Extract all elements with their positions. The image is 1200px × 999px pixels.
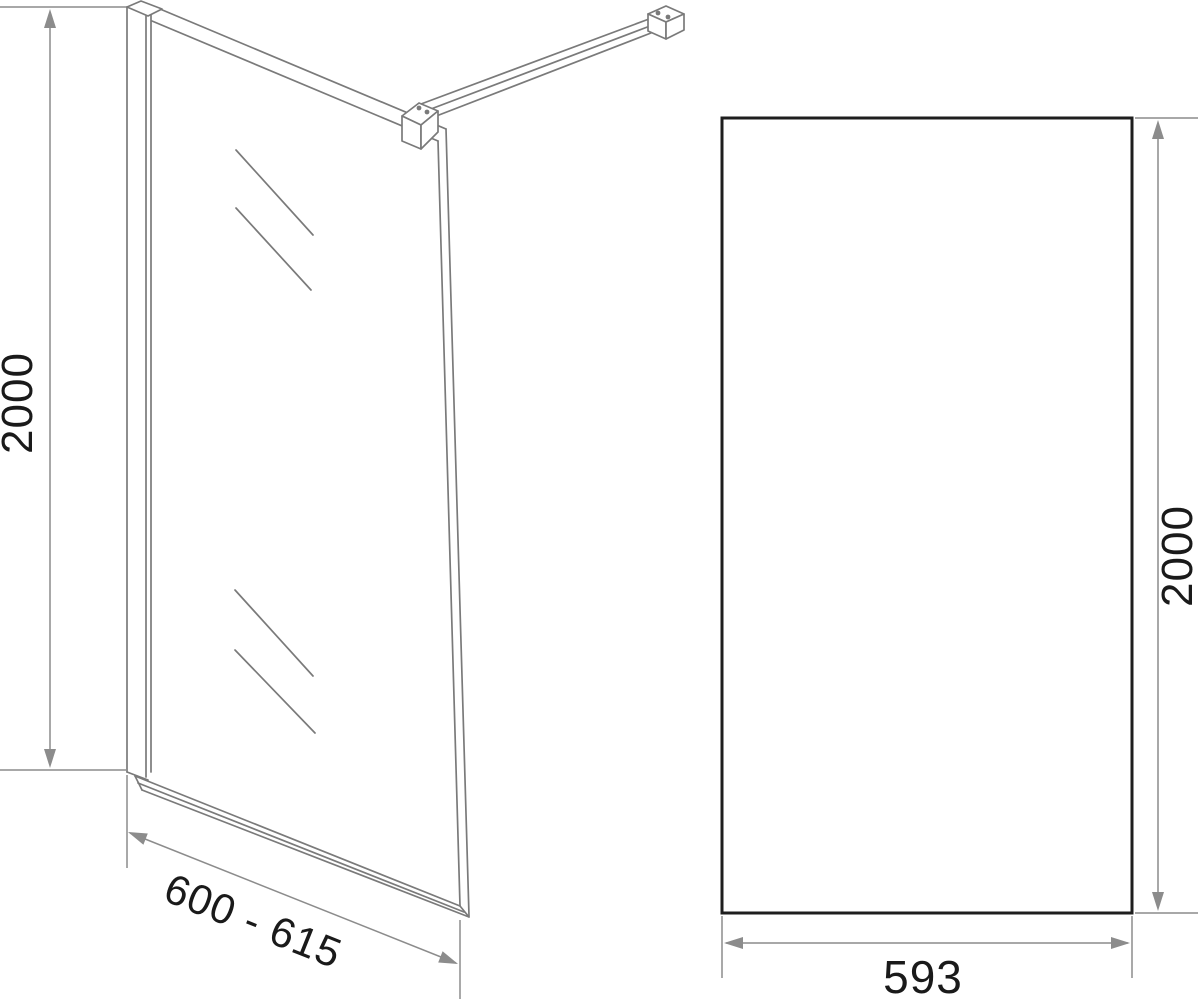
support-bar-bottom-line (426, 33, 651, 120)
support-bar (421, 19, 651, 120)
bracket-screw (656, 11, 661, 16)
width-dimension-label: 593 (883, 951, 963, 999)
perspective-view: 2000 (0, 1, 684, 999)
arrowhead-up (44, 9, 56, 28)
glass-panel-front-outline (722, 118, 1132, 913)
arrowhead-down (44, 749, 56, 768)
perspective-width-dimension: 600 - 615 (127, 775, 460, 999)
arrowhead-left (724, 937, 743, 949)
height-dimension-label: 2000 (0, 352, 42, 454)
arrowhead-up (1152, 120, 1164, 139)
arrowhead-left (128, 832, 148, 845)
clamp-screw (417, 106, 422, 111)
glass-top-edge-inner (152, 21, 438, 141)
wall-profile-bottom-edge (127, 772, 148, 780)
shower-screen-dimension-drawing: 2000 (0, 0, 1200, 999)
perspective-height-dimension: 2000 (0, 7, 127, 770)
front-height-dimension: 2000 (1135, 118, 1200, 913)
front-width-dimension: 593 (722, 916, 1132, 999)
arrowhead-right (438, 951, 458, 964)
wall-profile-top-cap (127, 1, 162, 16)
bracket-screw (666, 15, 671, 20)
arrowhead-right (1111, 937, 1130, 949)
support-bar-middle-line (423, 26, 650, 112)
clamp-screw (425, 110, 430, 115)
reflection-marks (235, 150, 315, 733)
reflection-stroke (236, 150, 313, 235)
wall-profile (127, 1, 162, 780)
support-bar-wall-bracket (648, 6, 684, 39)
support-bar-top-line (421, 19, 649, 104)
height-dimension-label: 2000 (1153, 505, 1200, 607)
width-dimension-label: 600 - 615 (158, 864, 349, 977)
drawing-canvas: 2000 (0, 0, 1200, 999)
glass-top-edge-outer (160, 9, 446, 129)
front-view: 2000 593 (722, 118, 1200, 999)
arrowhead-down (1152, 892, 1164, 911)
reflection-stroke (235, 650, 315, 733)
glass-clamp (402, 103, 438, 149)
